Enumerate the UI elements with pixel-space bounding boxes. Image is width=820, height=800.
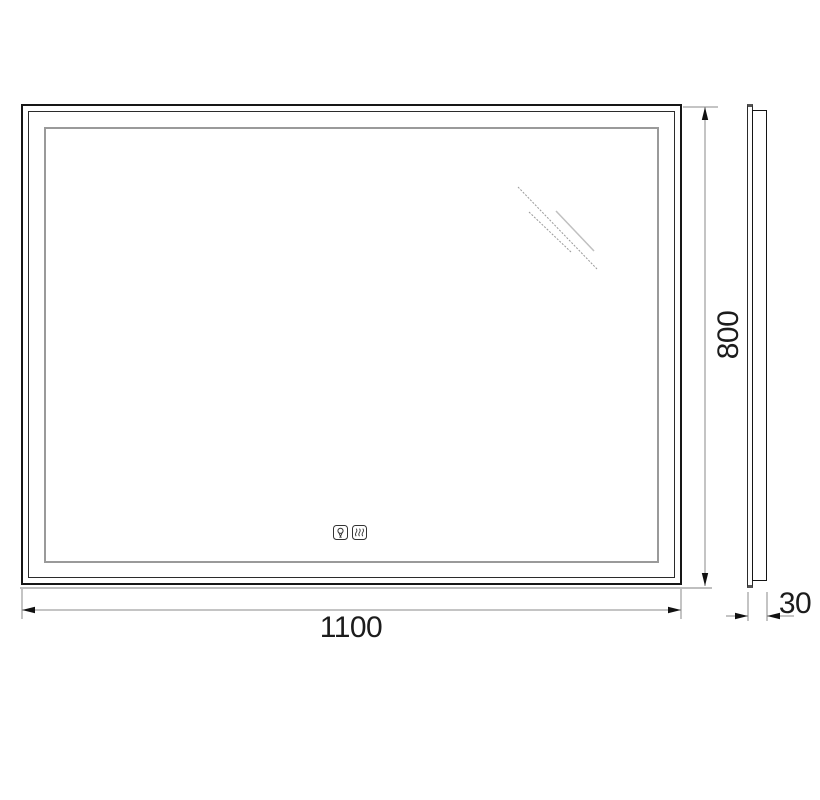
depth-dimension-label: 30 xyxy=(765,589,820,619)
height-dimension-arrow-bottom xyxy=(702,573,708,586)
anti-fog-heater-icon xyxy=(353,526,367,540)
dimension-linework xyxy=(0,0,820,800)
technical-drawing-canvas: 1100 800 30 xyxy=(0,0,820,800)
touch-controls xyxy=(334,526,367,540)
light-bulb-icon xyxy=(334,526,348,540)
height-dimension-arrow-top xyxy=(702,107,708,120)
width-dimension-arrow-left xyxy=(22,607,35,613)
width-dimension-arrow-right xyxy=(668,607,681,613)
width-dimension-label: 1100 xyxy=(291,613,411,643)
height-dimension-label: 800 xyxy=(714,275,744,395)
depth-dimension-arrow-left xyxy=(735,613,748,619)
glass-reflection-lines xyxy=(518,187,597,269)
